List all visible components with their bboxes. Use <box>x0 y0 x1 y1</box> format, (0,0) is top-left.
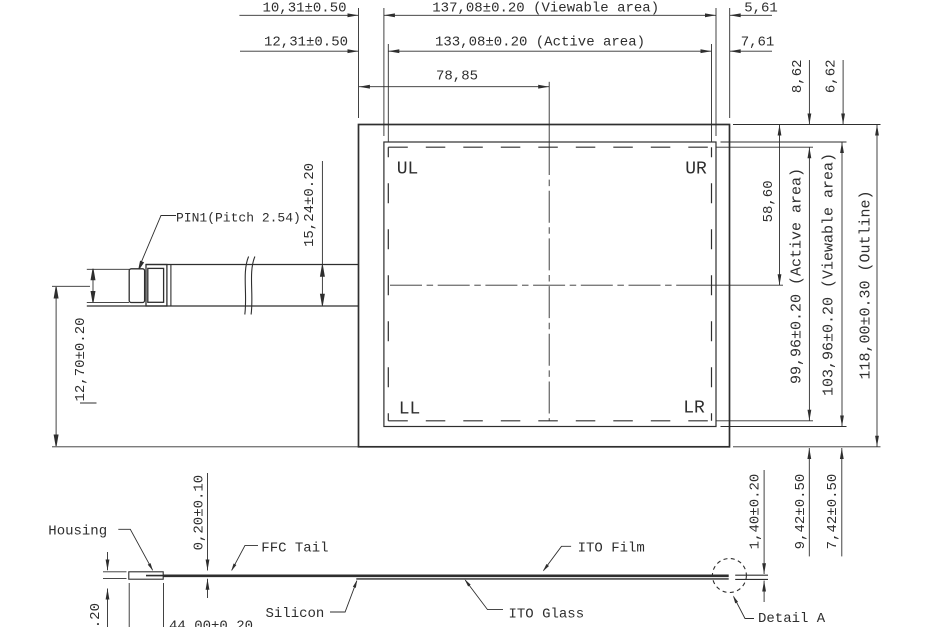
svg-text:9,42±0.50: 9,42±0.50 <box>793 474 809 550</box>
svg-text:ITO Glass: ITO Glass <box>509 607 585 623</box>
svg-text:133,08±0.20 (Active area): 133,08±0.20 (Active area) <box>435 35 645 51</box>
svg-text:LL: LL <box>399 400 421 420</box>
svg-text:PIN1(Pitch 2.54): PIN1(Pitch 2.54) <box>176 211 301 226</box>
svg-text:Silicon: Silicon <box>266 606 325 622</box>
svg-text:12,31±0.50: 12,31±0.50 <box>264 35 348 51</box>
svg-text:118,00±0.30 (Outline): 118,00±0.30 (Outline) <box>858 190 875 379</box>
svg-text:99,96±0.20 (Active area): 99,96±0.20 (Active area) <box>789 168 806 384</box>
svg-text:8,62: 8,62 <box>790 59 806 93</box>
svg-text:1,40±0.20: 1,40±0.20 <box>748 474 764 550</box>
svg-text:103,96±0.20 (Viewable area): 103,96±0.20 (Viewable area) <box>821 153 838 396</box>
svg-text:1,20±0.20: 1,20±0.20 <box>88 603 104 627</box>
svg-text:UL: UL <box>397 160 419 180</box>
svg-text:0,20±0.10: 0,20±0.10 <box>192 475 208 551</box>
svg-text:UR: UR <box>685 160 707 180</box>
svg-text:58,60: 58,60 <box>761 180 777 222</box>
svg-text:44,00±0.20: 44,00±0.20 <box>169 619 253 627</box>
svg-text:Detail A: Detail A <box>758 611 826 627</box>
svg-text:15,24±0.20: 15,24±0.20 <box>302 163 318 247</box>
svg-text:7,61: 7,61 <box>741 35 775 51</box>
svg-text:ITO Film: ITO Film <box>578 541 645 557</box>
svg-text:5,61: 5,61 <box>744 0 778 16</box>
svg-text:78,85: 78,85 <box>436 69 478 85</box>
svg-text:Housing: Housing <box>48 524 107 540</box>
svg-text:6,62: 6,62 <box>824 59 840 93</box>
svg-text:137,08±0.20 (Viewable area): 137,08±0.20 (Viewable area) <box>432 0 659 16</box>
svg-text:10,31±0.50: 10,31±0.50 <box>262 0 346 16</box>
svg-text:7,42±0.50: 7,42±0.50 <box>825 474 841 550</box>
svg-text:12,70±0.20: 12,70±0.20 <box>73 317 89 401</box>
svg-text:LR: LR <box>683 399 705 419</box>
svg-text:FFC Tail: FFC Tail <box>261 541 328 557</box>
